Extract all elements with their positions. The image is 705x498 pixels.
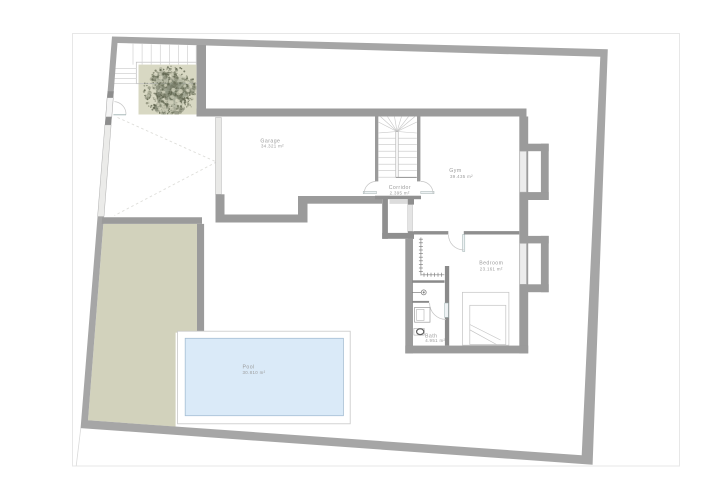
svg-text:30.810 m²: 30.810 m² bbox=[243, 370, 266, 375]
svg-text:39.435 m²: 39.435 m² bbox=[450, 174, 473, 179]
svg-text:34.321 m²: 34.321 m² bbox=[261, 143, 284, 148]
svg-text:4.951 m²: 4.951 m² bbox=[425, 338, 445, 343]
svg-text:23.161 m²: 23.161 m² bbox=[480, 267, 503, 272]
svg-text:2.395 m²: 2.395 m² bbox=[390, 190, 410, 195]
